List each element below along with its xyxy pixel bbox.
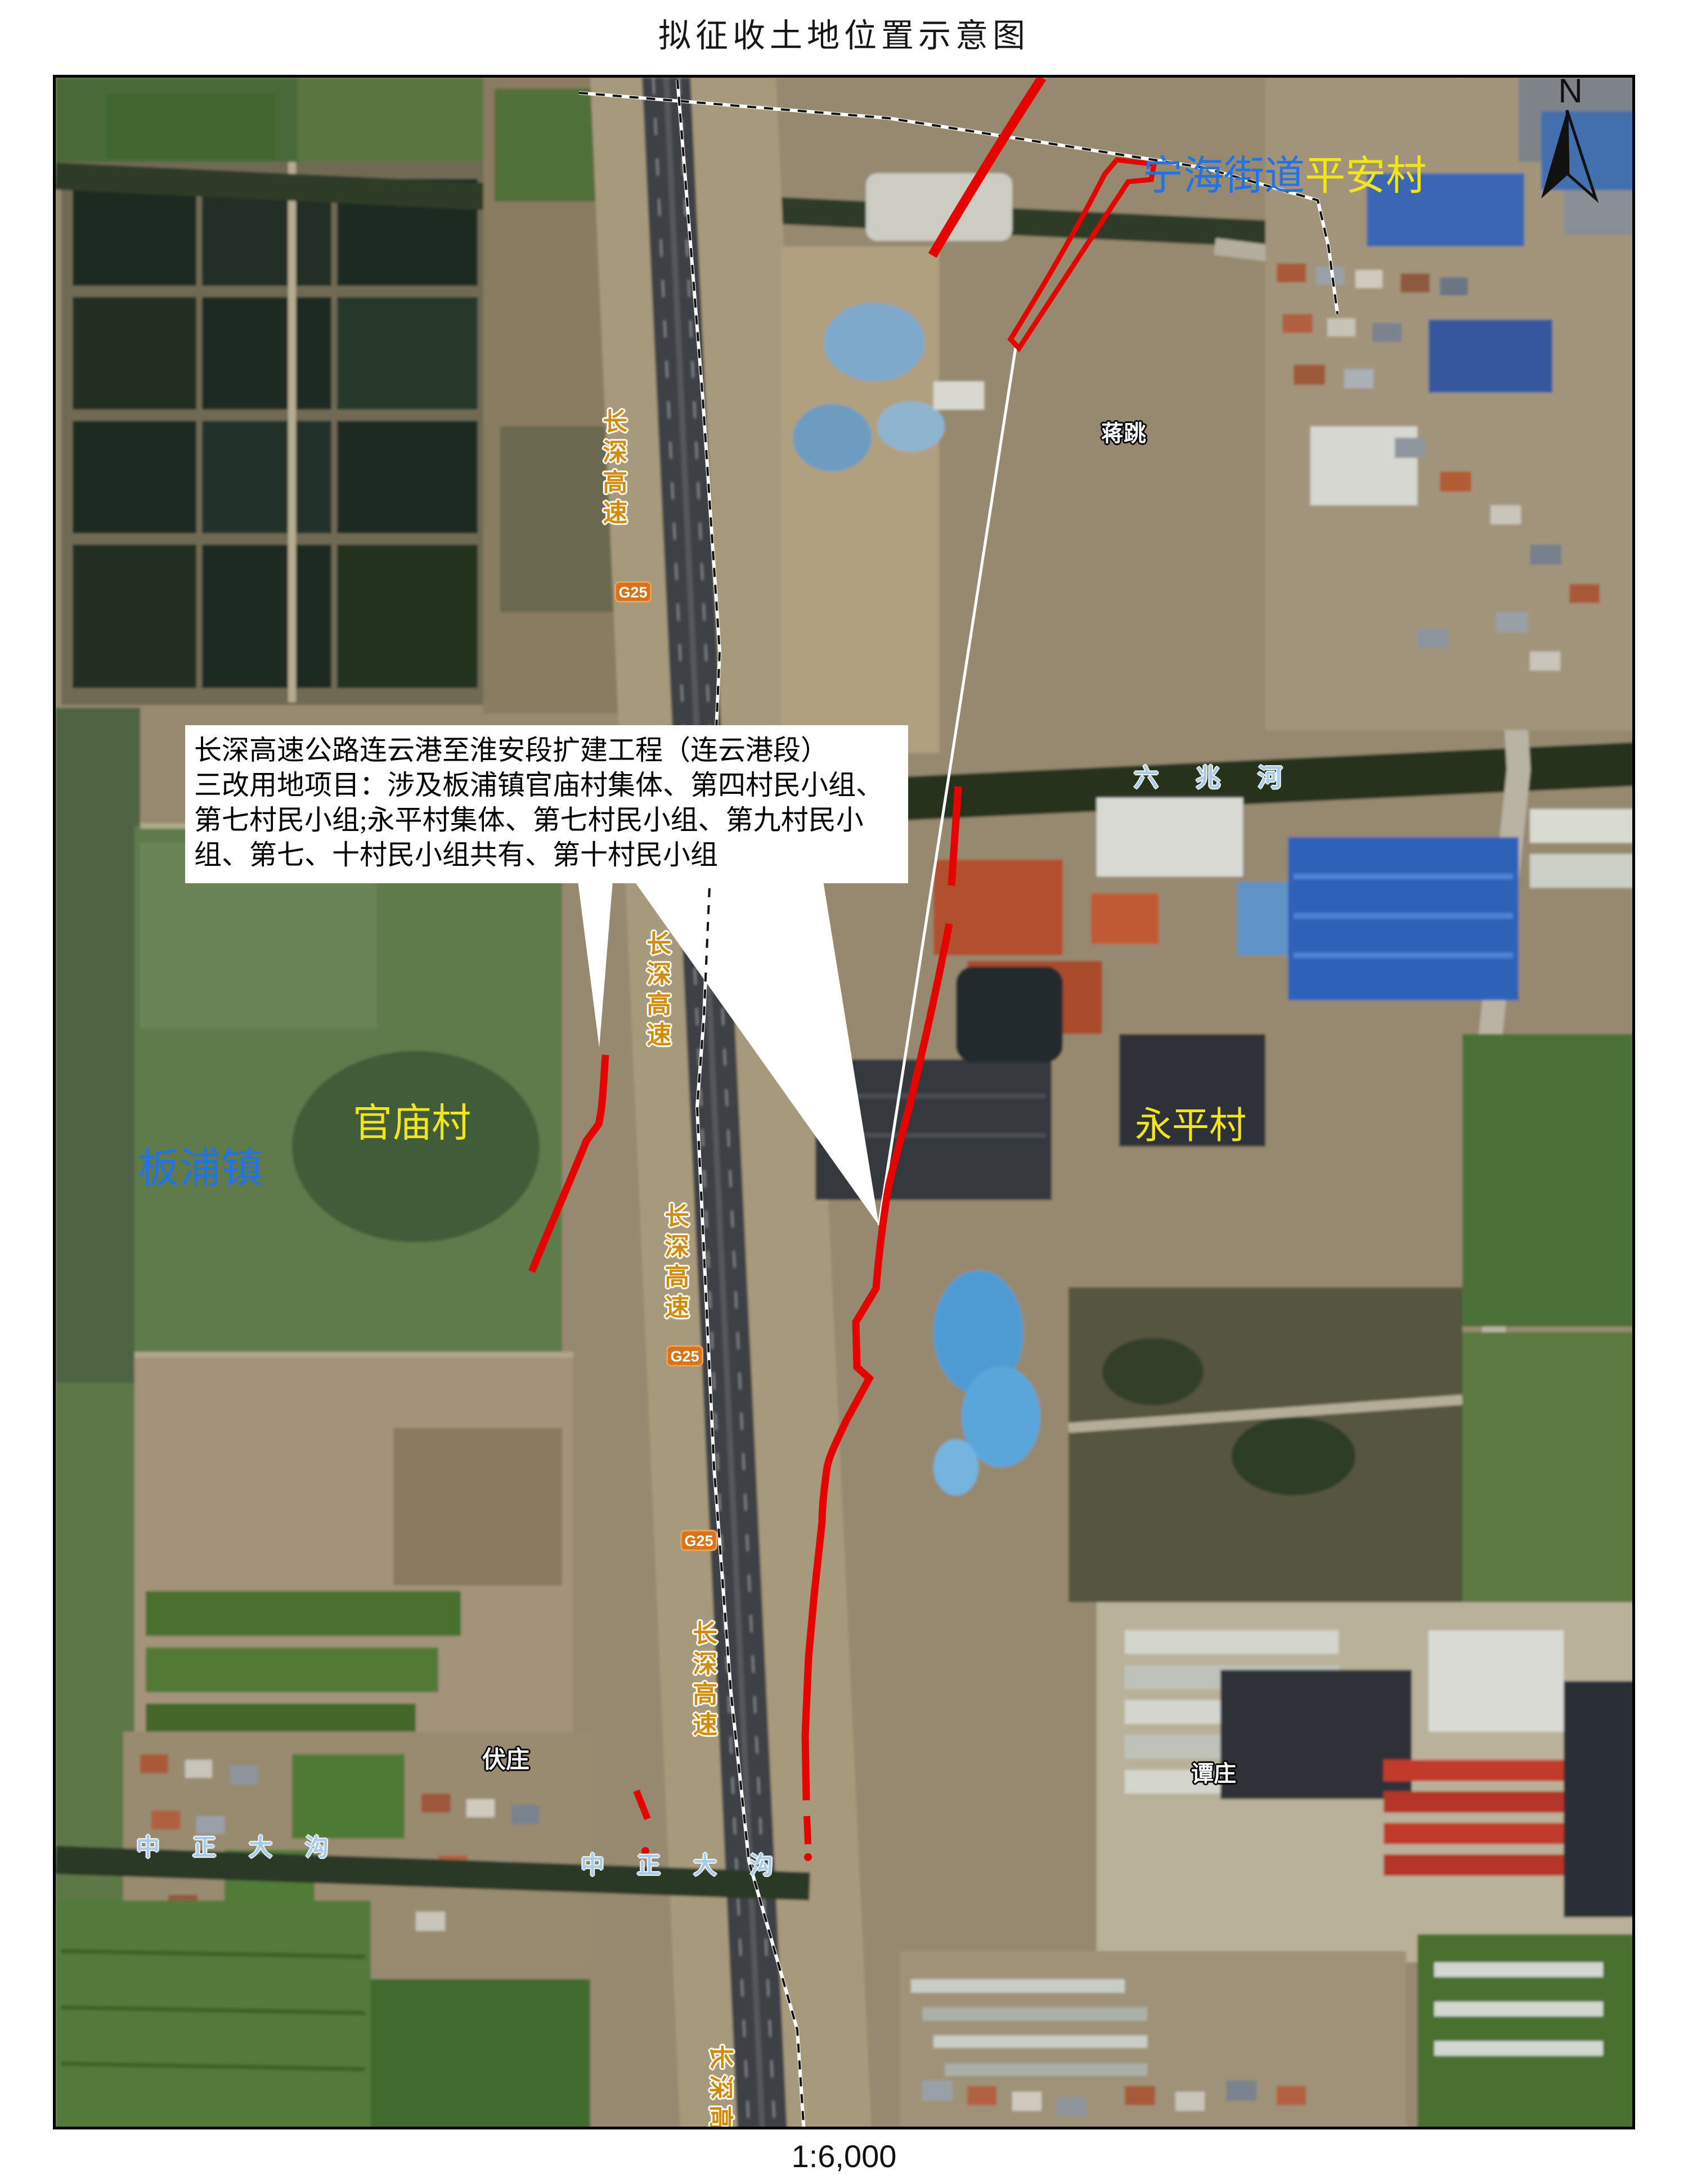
label-highway-1: 长深高速 [599,408,625,530]
callout-line-1: 长深高速公路连云港至淮安段扩建工程（连云港段） [194,733,908,768]
map-canvas: N 宁海街道平安村 板浦镇 官庙村 永平村 蒋跳 伏庄 谭庄 六兆河 中正大沟 … [53,75,1635,2129]
callout-line-3: 第七村民小组;永平村集体、第七村民小组、第九村民小 [194,803,908,838]
callout-line-4: 组、第七、十村民小组共有、第十村民小组 [194,838,908,873]
project-callout-box: 长深高速公路连云港至淮安段扩建工程（连云港段） 三改用地项目：涉及板浦镇官庙村集… [185,725,908,883]
label-river-liuzhao: 六兆河 [1134,765,1319,791]
label-town-banpu: 板浦镇 [138,1147,263,1190]
label-highway-2: 长深高速 [643,931,669,1052]
red-dash-east-bottom [807,1816,808,1844]
callout-line-2: 三改用地项目：涉及板浦镇官庙村集体、第四村民小组、 [194,768,908,803]
north-label: N [1548,75,1593,109]
label-ditch-zhongzheng-west: 中正大沟 [136,1835,361,1860]
map-scale: 1:6,000 [0,2138,1688,2174]
label-hamlet-fuzhuang: 伏庄 [482,1747,529,1772]
label-village-pingan: 平安村 [1305,154,1426,199]
label-hamlet-tanzhuang: 谭庄 [1191,1762,1236,1786]
label-street-ninghai: 宁海街道 [1143,154,1305,199]
label-highway-5-rotated: 长深高速 [707,2044,733,2129]
highway-shield-g25-2: G25 [666,1345,703,1367]
label-highway-3: 长深高速 [661,1203,687,1324]
map-graphics [56,78,1635,2129]
label-ditch-zhongzheng-mid: 中正大沟 [581,1853,806,1878]
highway-shield-g25-1: G25 [614,581,652,603]
page-title: 拟征收土地位置示意图 [0,9,1688,56]
label-highway-4: 长深高速 [689,1620,715,1742]
highway-shield-g25-3: G25 [680,1530,717,1551]
label-hamlet-jiangtiao: 蒋跳 [1101,422,1146,446]
label-village-guanmiao: 官庙村 [353,1103,471,1144]
label-row-top: 宁海街道平安村 [1143,155,1426,198]
label-village-yongping: 永平村 [1135,1106,1246,1145]
